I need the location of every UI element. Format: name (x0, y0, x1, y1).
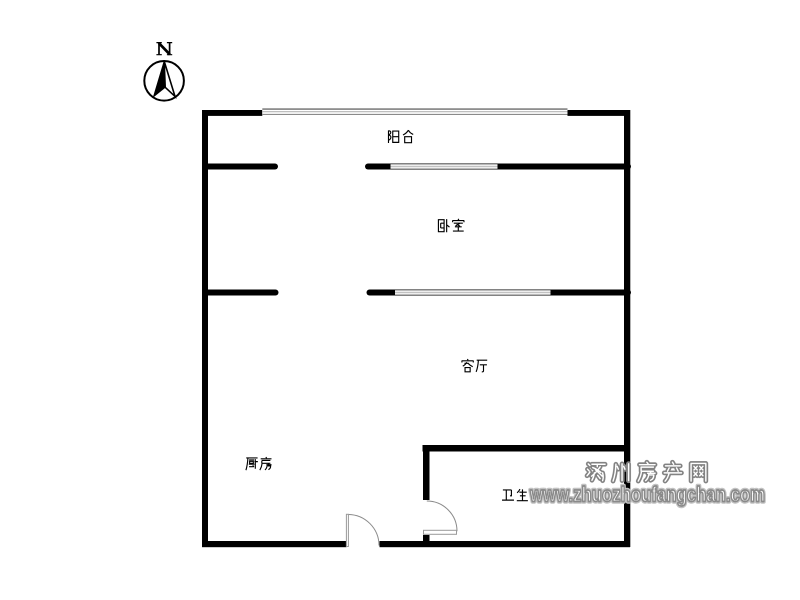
svg-text:www.zhuozhoufangchan.com: www.zhuozhoufangchan.com (529, 484, 765, 507)
